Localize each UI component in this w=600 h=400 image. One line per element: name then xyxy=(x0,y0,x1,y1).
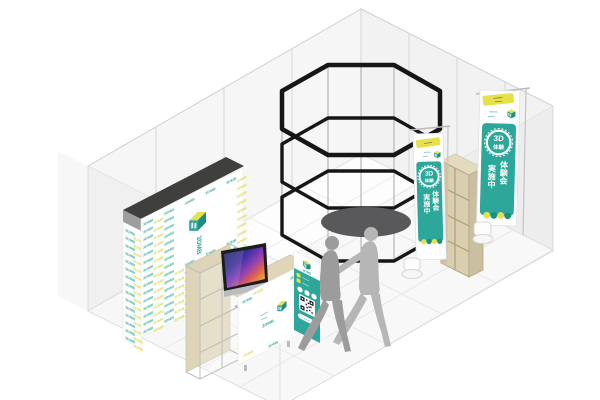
booth-render: 3DMB3DMB3DMB3DMB3DMB3DMB3DMB3DMB3DMB3DMB… xyxy=(0,0,600,400)
backdrop-left-face: 3DMB3DMB3DMB3DMB3DMB3DMB3DMB3DMB3DMB3DMB… xyxy=(123,222,143,353)
banner-vertical-text2: 実施中 xyxy=(487,163,497,189)
silhouette-head xyxy=(325,236,339,250)
banner-ribbon-line2: ••••••• xyxy=(495,99,502,104)
banner-base-foot xyxy=(473,235,493,244)
banner-vertical-text1: 体験会 xyxy=(498,160,509,186)
counter-foot xyxy=(287,341,290,347)
banner-tagline2: ••••• xyxy=(423,154,428,158)
silhouette-body xyxy=(359,241,380,295)
banner-base-foot xyxy=(402,270,422,279)
banner-base xyxy=(474,222,491,236)
banner-tagline2: •••••• xyxy=(488,114,494,118)
badge-line1: 3D xyxy=(494,134,505,143)
backdrop-logo-text: 3DMB xyxy=(195,235,202,257)
silhouette-head xyxy=(364,227,378,241)
left-wall-outer-face xyxy=(58,151,88,311)
badge-line1: 3D xyxy=(425,170,434,177)
isometric-booth-scene: 3DMB3DMB3DMB3DMB3DMB3DMB3DMB3DMB3DMB3DMB… xyxy=(0,0,600,400)
counter-foot xyxy=(244,365,247,371)
